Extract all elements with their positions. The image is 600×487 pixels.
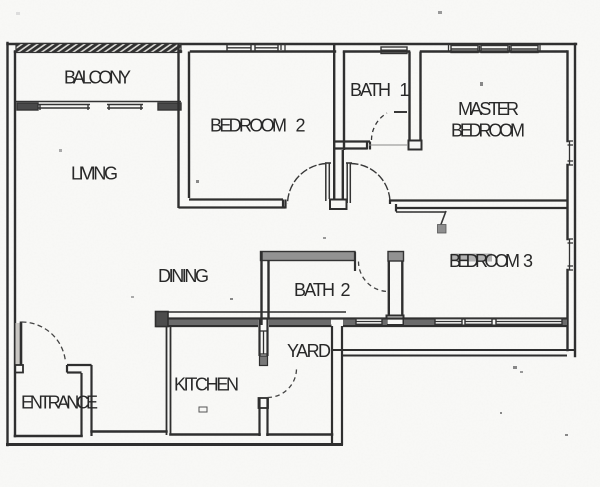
svg-text:ENTRANCE: ENTRANCE (21, 393, 98, 413)
svg-text:DINING: DINING (158, 266, 209, 286)
svg-text:BEDROOM: BEDROOM (210, 116, 287, 136)
svg-text:BEDROOM: BEDROOM (451, 121, 525, 141)
svg-text:1: 1 (400, 80, 410, 100)
svg-text:2: 2 (341, 280, 351, 300)
svg-text:BATH: BATH (350, 80, 391, 100)
svg-text:BATH: BATH (294, 280, 335, 300)
svg-text:YARD: YARD (287, 341, 331, 361)
svg-text:LIVING: LIVING (71, 164, 118, 184)
svg-text:BALCONY: BALCONY (64, 68, 131, 88)
svg-text:MASTER: MASTER (458, 99, 519, 119)
svg-text:BEDROOM: BEDROOM (449, 251, 520, 271)
svg-text:3: 3 (523, 251, 533, 271)
svg-text:2: 2 (296, 116, 306, 136)
svg-text:KITCHEN: KITCHEN (174, 375, 239, 395)
